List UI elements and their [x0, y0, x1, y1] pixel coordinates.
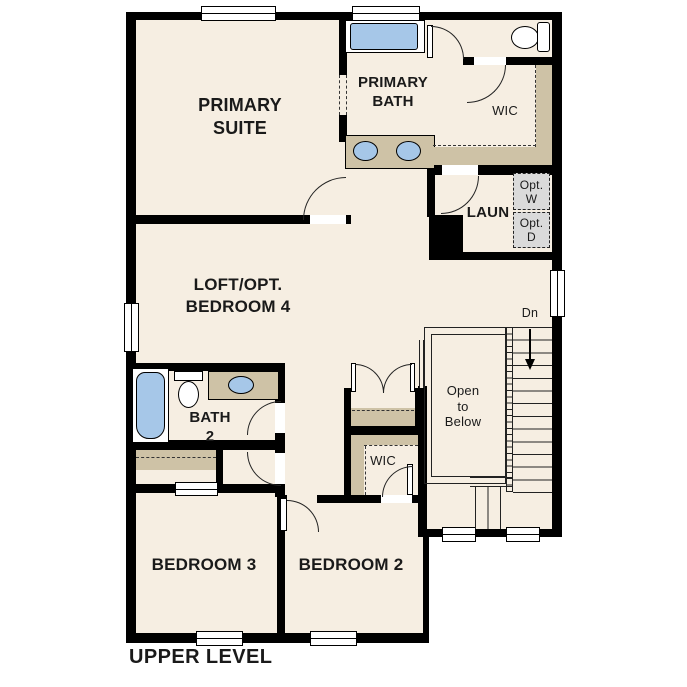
label-primary-wic: WIC: [480, 103, 530, 118]
shelf-primary-wic-bottom: [433, 147, 552, 165]
window-stair-right: [550, 270, 565, 317]
tub-bath2: [136, 372, 165, 439]
label-bed2-wic: WIC: [358, 453, 408, 468]
wall-laundry-south: [429, 252, 558, 260]
wall-closet3-east: [216, 450, 223, 484]
window-bedroom3-bottom: [196, 631, 243, 646]
toilet-bowl-bath2: [178, 381, 199, 408]
label-primary-bath: PRIMARY BATH: [342, 73, 444, 111]
sink-bath2: [228, 376, 254, 394]
stair-lower-rail: [470, 477, 513, 487]
window-stairwell-2: [506, 527, 540, 542]
chase-block: [429, 215, 463, 255]
stair-treads: [513, 327, 552, 493]
floor-plan: Opt. W Opt. D PRIMARY SUITE PRIMARY BATH…: [0, 0, 687, 687]
opt-washer-box: Opt. W: [513, 173, 550, 210]
stair-down-arrow: [525, 359, 535, 370]
sink-primary-left: [353, 141, 378, 161]
shelf-line-closet3: [136, 457, 216, 459]
shelf-line-primary-wic-h: [433, 145, 536, 147]
shelf-closet3: [136, 450, 216, 470]
wall-suite-loft: [128, 215, 309, 224]
wall-bedrooms-top-b: [317, 495, 381, 503]
wall-linen-wic-left: [344, 388, 351, 503]
toilet-tank-wc: [537, 22, 550, 52]
wall-linen-south: [344, 426, 422, 435]
toilet-bowl-wc: [511, 26, 539, 49]
stair-rail-balusters: [506, 327, 513, 492]
wall-bedrooms-top-c: [412, 495, 427, 503]
shelf-line-primary-wic-v: [535, 65, 537, 147]
window-primary-bath-top: [352, 6, 420, 21]
wall-bedroom2-right: [423, 537, 429, 643]
wall-closet3-front: [128, 484, 175, 493]
stair-direction-line: [529, 329, 531, 361]
wall-wc-south-a: [463, 57, 473, 65]
window-stairwell-1: [442, 527, 476, 542]
window-loft-left: [124, 303, 139, 352]
door-jamb-primary-wic: [473, 57, 507, 65]
door-leaf-bedroom2: [280, 498, 287, 531]
shelf-line-bed2-wic-h: [364, 445, 418, 447]
window-bedroom2-bottom: [310, 631, 357, 646]
plan-title: UPPER LEVEL: [129, 646, 349, 669]
shelf-line-linen: [352, 410, 414, 412]
window-primary-suite-top: [201, 6, 276, 21]
label-laundry: LAUN: [462, 204, 514, 221]
label-bedroom3: BEDROOM 3: [124, 555, 284, 575]
opt-dryer-box: Opt. D: [513, 212, 550, 248]
wall-wc-south-b: [505, 57, 562, 65]
wall-bath2-east-b: [275, 432, 285, 452]
sink-primary-right: [396, 141, 421, 161]
label-bath2: BATH 2: [180, 408, 240, 446]
door-jamb-laundry: [441, 165, 479, 175]
closet3-bypass-doors: [175, 482, 218, 496]
label-stairs-down: Dn: [512, 306, 548, 320]
label-bedroom2: BEDROOM 2: [280, 555, 422, 575]
toilet-tank-bath2: [174, 371, 203, 381]
stair-lower-treads: [475, 487, 501, 529]
shower-primary: [350, 23, 418, 50]
label-open-to-below: Open to Below: [427, 383, 499, 430]
label-loft: LOFT/OPT. BEDROOM 4: [148, 274, 328, 318]
label-primary-suite: PRIMARY SUITE: [150, 94, 330, 140]
